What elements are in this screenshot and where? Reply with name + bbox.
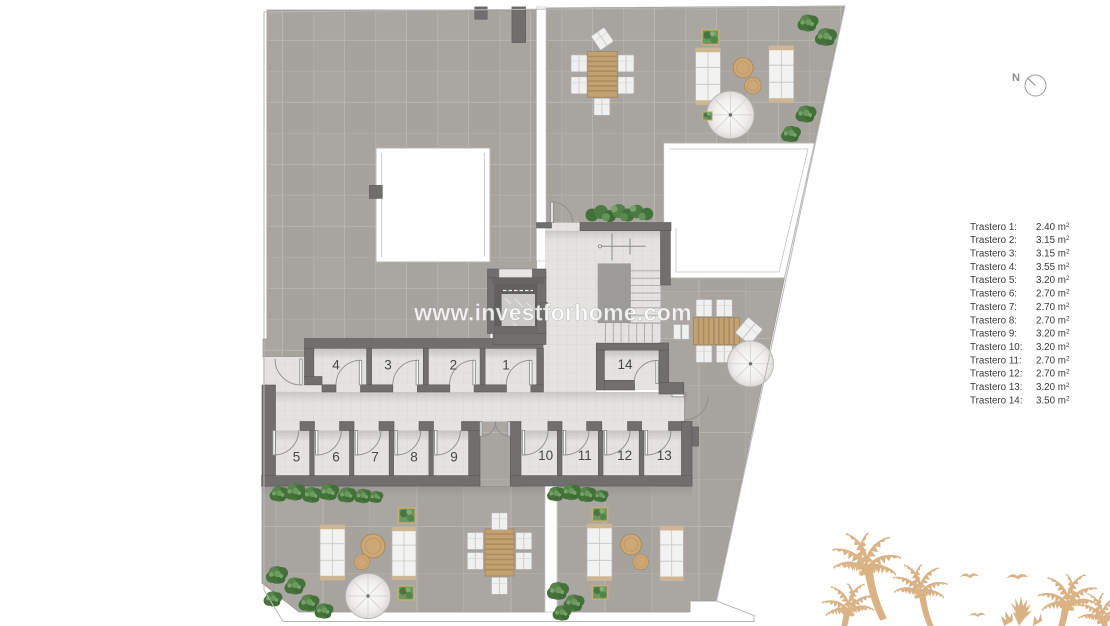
svg-text:13: 13	[657, 448, 672, 463]
svg-text:Trastero 4:: Trastero 4:	[970, 262, 1017, 273]
svg-text:8: 8	[410, 450, 418, 465]
svg-text:3.50 m2: 3.50 m2	[1036, 395, 1070, 406]
svg-text:www.investforhome.com: www.investforhome.com	[413, 300, 692, 326]
svg-text:3.55 m2: 3.55 m2	[1036, 262, 1070, 273]
svg-text:Trastero 6:: Trastero 6:	[970, 289, 1017, 300]
svg-text:14: 14	[617, 357, 633, 372]
svg-text:Trastero 2:: Trastero 2:	[970, 235, 1017, 246]
svg-text:Trastero 5:: Trastero 5:	[970, 275, 1017, 286]
svg-text:3.20 m2: 3.20 m2	[1036, 329, 1070, 340]
svg-text:2: 2	[450, 358, 458, 373]
svg-text:2.40 m2: 2.40 m2	[1036, 222, 1070, 233]
svg-text:9: 9	[450, 450, 458, 465]
svg-text:2.70 m2: 2.70 m2	[1036, 355, 1070, 366]
svg-text:Trastero 8:: Trastero 8:	[970, 315, 1017, 326]
svg-text:Trastero 12:: Trastero 12:	[970, 369, 1022, 380]
svg-text:3.15 m2: 3.15 m2	[1036, 235, 1070, 246]
svg-text:Trastero 7:: Trastero 7:	[970, 302, 1017, 313]
svg-text:3: 3	[384, 358, 392, 373]
svg-text:3.20 m2: 3.20 m2	[1036, 275, 1070, 286]
svg-text:Trastero 9:: Trastero 9:	[970, 329, 1017, 340]
svg-text:3.20 m2: 3.20 m2	[1036, 382, 1070, 393]
svg-text:N: N	[1012, 72, 1020, 84]
svg-text:12: 12	[617, 448, 632, 463]
svg-text:3.20 m2: 3.20 m2	[1036, 342, 1070, 353]
svg-text:2.70 m2: 2.70 m2	[1036, 369, 1070, 380]
svg-text:Trastero 3:: Trastero 3:	[970, 249, 1017, 260]
svg-text:6: 6	[332, 450, 340, 465]
svg-text:Trastero 10:: Trastero 10:	[970, 342, 1022, 353]
svg-text:11: 11	[578, 448, 592, 463]
svg-text:2.70 m2: 2.70 m2	[1036, 302, 1070, 313]
svg-text:Trastero 11:: Trastero 11:	[970, 355, 1022, 366]
svg-text:5: 5	[293, 450, 301, 465]
svg-text:1: 1	[502, 358, 510, 373]
svg-text:10: 10	[538, 448, 553, 463]
svg-text:Trastero 1:: Trastero 1:	[970, 222, 1017, 233]
svg-text:7: 7	[371, 450, 379, 465]
svg-text:Trastero 13:: Trastero 13:	[970, 382, 1022, 393]
svg-text:2.70 m2: 2.70 m2	[1036, 289, 1070, 300]
svg-text:Trastero 14:: Trastero 14:	[970, 395, 1022, 406]
svg-text:4: 4	[332, 358, 340, 373]
svg-text:2.70 m2: 2.70 m2	[1036, 315, 1070, 326]
svg-text:3.15 m2: 3.15 m2	[1036, 249, 1070, 260]
